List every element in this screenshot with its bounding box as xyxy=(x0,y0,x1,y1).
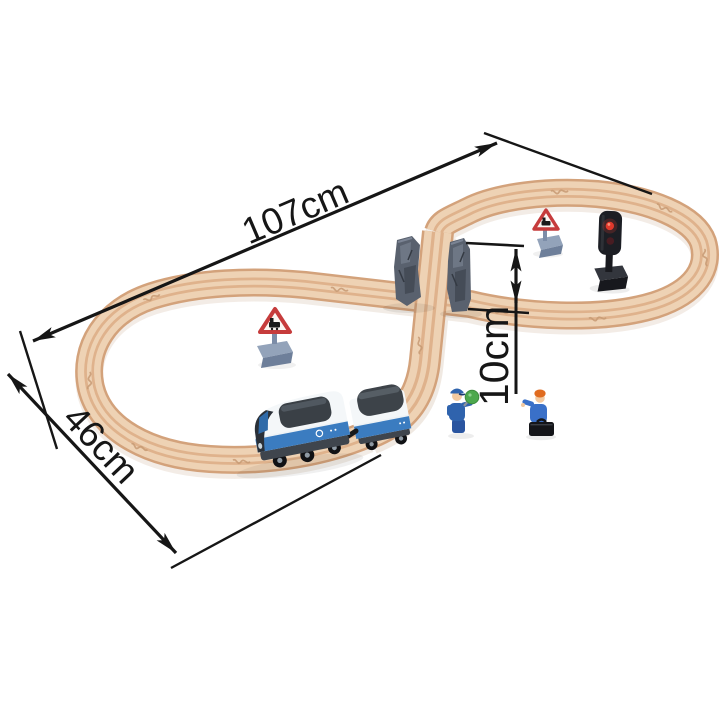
extension-line-left xyxy=(20,331,57,449)
signal-light xyxy=(589,210,632,294)
suitcase-trim xyxy=(531,424,553,425)
cap-visor xyxy=(459,394,465,395)
bridge-pier-right xyxy=(447,238,471,312)
warning-triangle-icon xyxy=(260,309,290,332)
dimension-length-label: 107cm xyxy=(236,171,354,252)
warning-sign-right xyxy=(533,210,563,258)
passenger-hair xyxy=(534,390,545,398)
warning-sign-left xyxy=(257,309,296,369)
passenger-hand xyxy=(521,403,525,407)
product-photo: 107cm 46cm 10cm xyxy=(0,0,720,720)
bridge-pier-left xyxy=(394,236,421,306)
dimension-height-topline xyxy=(466,243,524,246)
conductor-cap xyxy=(451,389,464,394)
scene-svg: 107cm 46cm 10cm xyxy=(0,0,720,720)
conductor-legs xyxy=(452,419,465,433)
figure-shadow xyxy=(448,433,474,439)
conductor-arm-left xyxy=(447,405,452,416)
passenger-figure xyxy=(521,390,556,441)
dimension-height-label: 10cm xyxy=(471,306,517,406)
